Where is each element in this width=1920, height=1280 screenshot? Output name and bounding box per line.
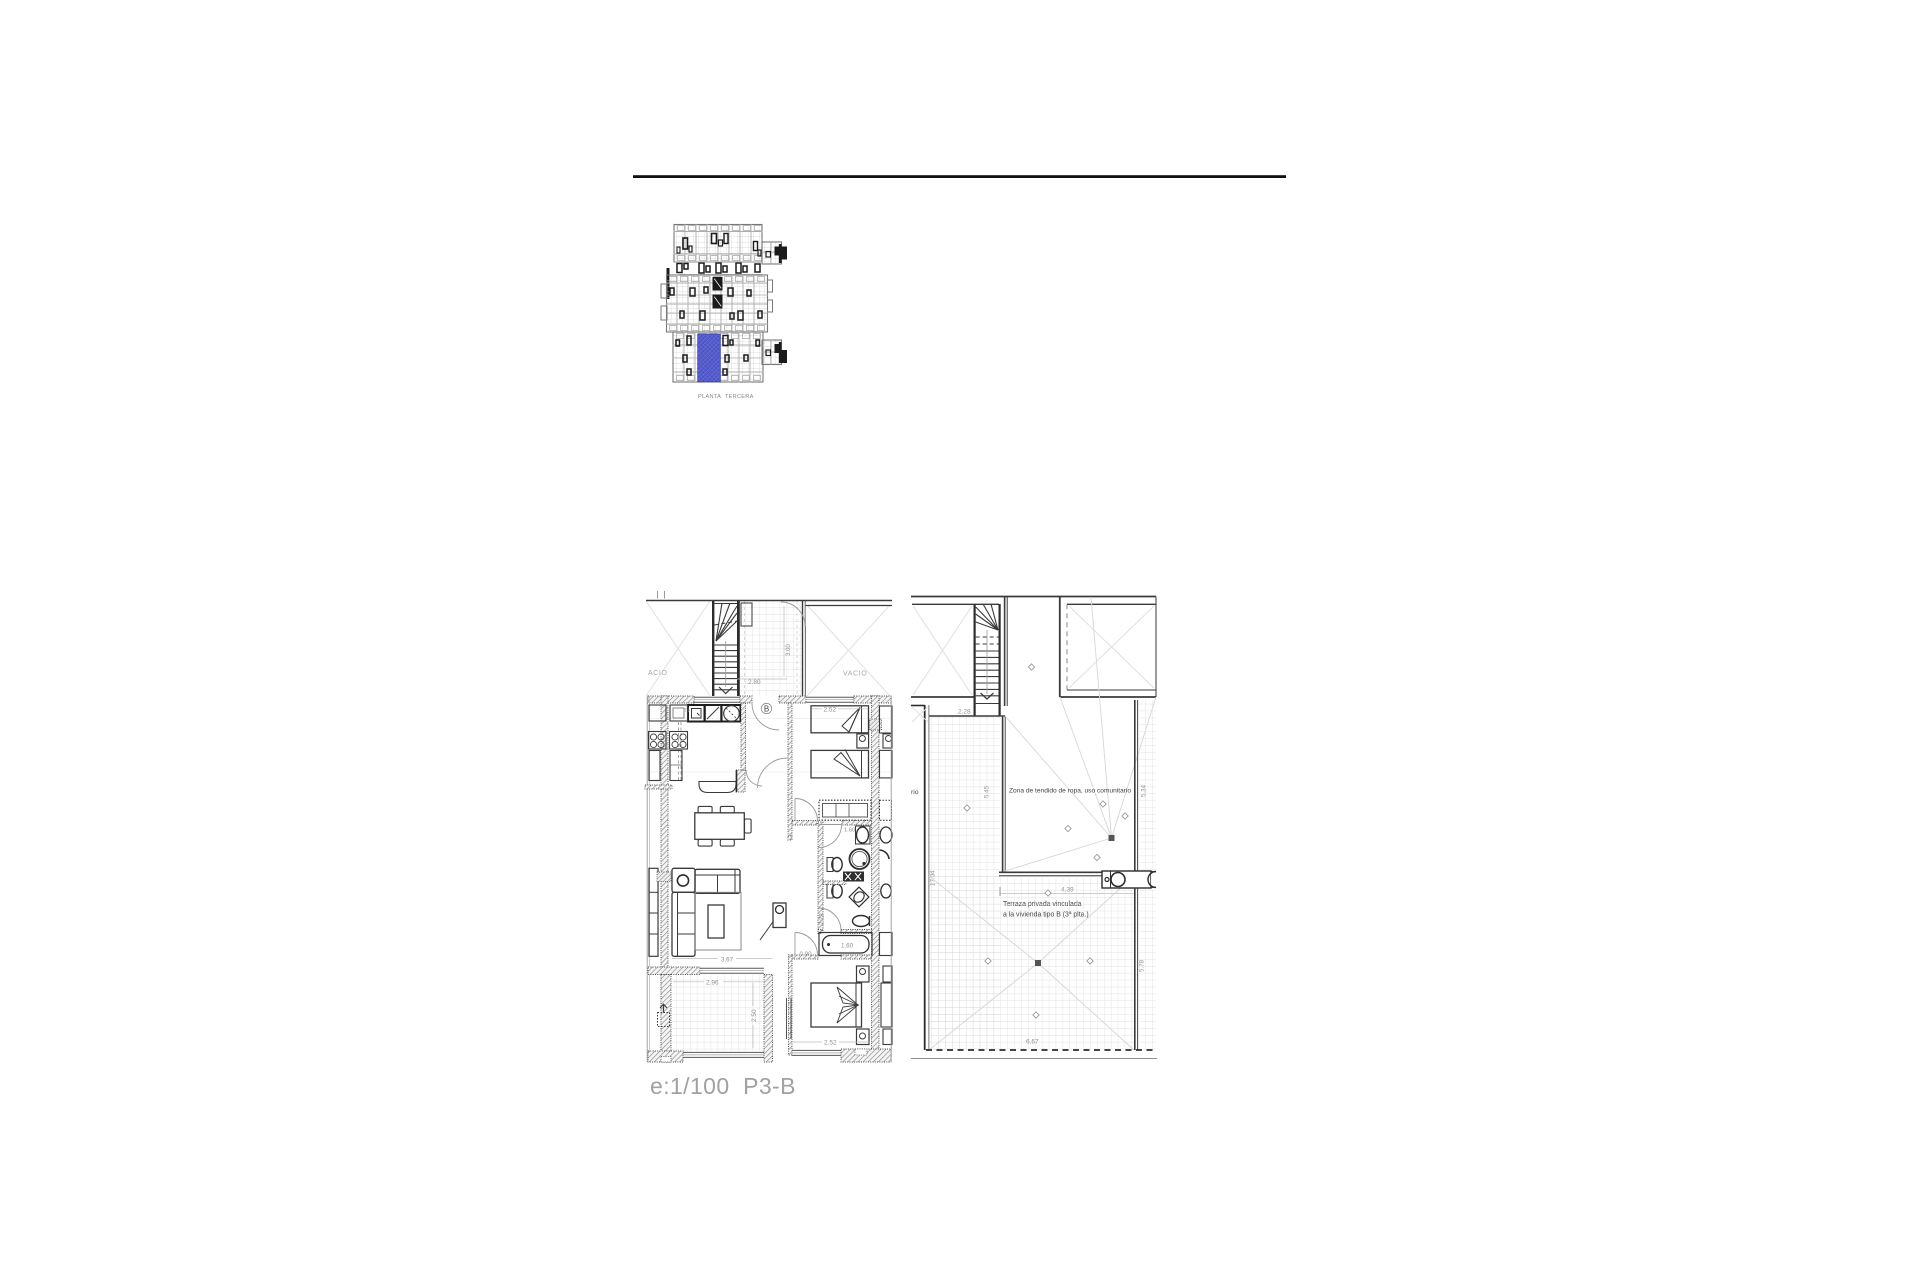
svg-text:e:1/100 P3-B: e:1/100 P3-B [650,1073,796,1099]
svg-text:2.80: 2.80 [748,679,761,686]
svg-text:5.78: 5.78 [1139,959,1146,972]
svg-text:2.28: 2.28 [820,913,826,925]
svg-text:rio: rio [911,789,919,796]
svg-text:2.50: 2.50 [751,1009,758,1022]
svg-text:Zona de tendido de ropa, uso c: Zona de tendido de ropa, uso comunitario [1009,788,1131,795]
svg-text:6.67: 6.67 [1026,1039,1039,1046]
svg-text:2.96: 2.96 [706,980,719,987]
svg-text:B: B [764,705,769,714]
svg-text:1.60: 1.60 [841,943,854,950]
svg-text:1.60: 1.60 [844,828,855,834]
svg-text:PLANTA TERCERA: PLANTA TERCERA [698,394,754,400]
svg-text:3.67: 3.67 [721,957,734,964]
svg-text:2.28: 2.28 [958,709,971,716]
svg-text:3.00: 3.00 [786,644,792,656]
svg-text:2.52: 2.52 [824,707,837,714]
svg-text:VACIO: VACIO [843,671,867,678]
svg-text:ACIO: ACIO [648,670,668,677]
svg-text:5.34: 5.34 [1141,784,1148,797]
svg-text:79: 79 [684,708,690,714]
svg-text:5.45: 5.45 [984,785,991,798]
svg-text:2.52: 2.52 [824,1040,837,1047]
